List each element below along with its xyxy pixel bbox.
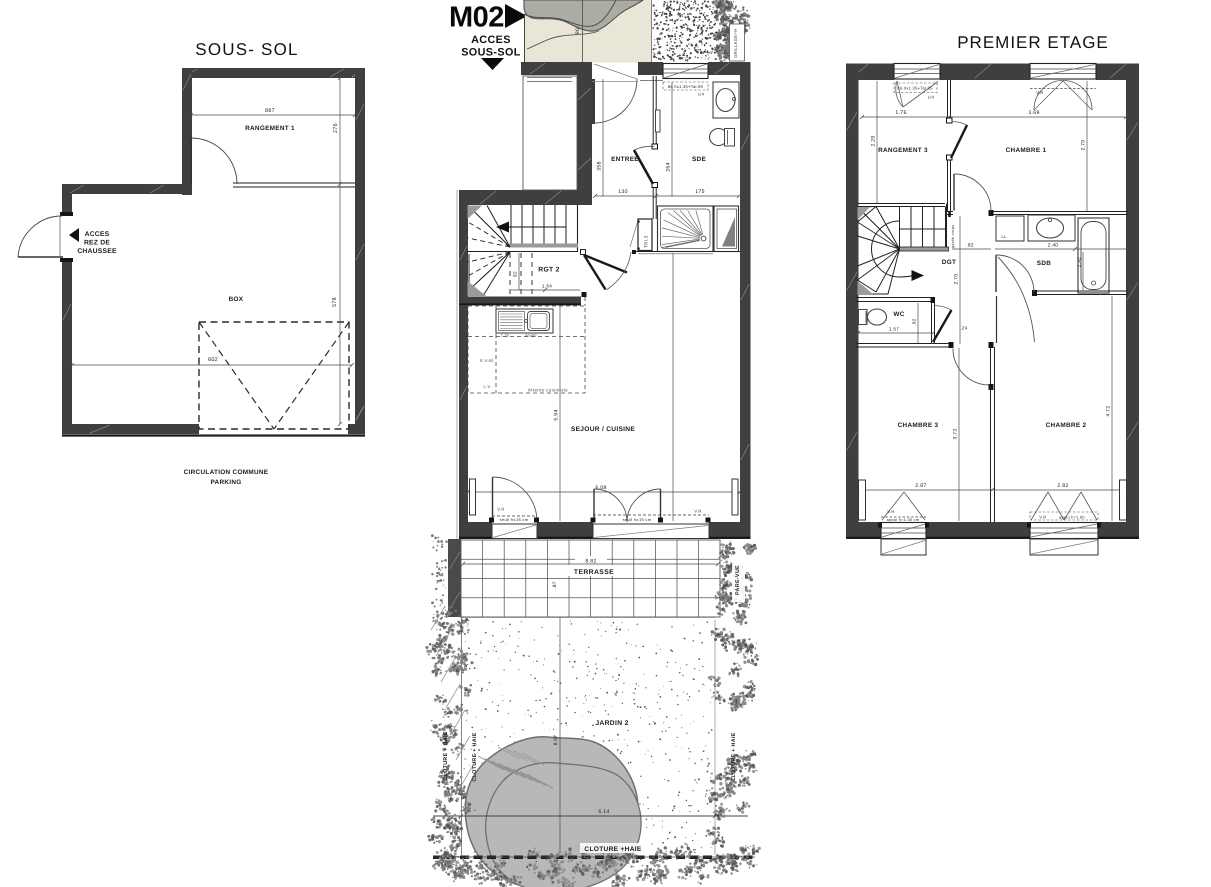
svg-text:2.70: 2.70 <box>954 274 960 285</box>
svg-text:578: 578 <box>332 297 338 307</box>
svg-text:8.07: 8.07 <box>553 735 559 746</box>
svg-text:ENTREE: ENTREE <box>611 156 639 163</box>
svg-text:L.V: L.V <box>484 384 491 389</box>
svg-text:86.0x1.35+Tal.95: 86.0x1.35+Tal.95 <box>897 86 933 91</box>
svg-text:V.R: V.R <box>1036 90 1044 95</box>
svg-text:RANGEMENT 1: RANGEMENT 1 <box>245 125 295 132</box>
svg-text:8.82: 8.82 <box>585 559 596 565</box>
svg-text:DGT: DGT <box>942 259 956 266</box>
svg-text:CLOTURE + HAIE: CLOTURE + HAIE <box>472 732 478 781</box>
svg-text:867: 867 <box>265 108 275 114</box>
svg-text:M02: M02 <box>449 2 504 34</box>
svg-text:garde corps: garde corps <box>951 225 955 248</box>
svg-text:3.69: 3.69 <box>1028 110 1039 116</box>
svg-text:6.14: 6.14 <box>598 809 609 815</box>
svg-text:CHAMBRE 1: CHAMBRE 1 <box>1006 147 1047 154</box>
svg-text:SOUS-SOL: SOUS-SOL <box>461 47 521 59</box>
svg-text:358: 358 <box>597 161 603 171</box>
svg-text:JARDIN 2: JARDIN 2 <box>595 720 628 727</box>
svg-text:602: 602 <box>208 357 218 363</box>
svg-text:PREMIER ETAGE: PREMIER ETAGE <box>957 33 1109 52</box>
svg-text:SDE: SDE <box>692 156 706 163</box>
svg-text:264: 264 <box>666 162 672 172</box>
svg-text:CLOTURE + HAIE: CLOTURE + HAIE <box>731 732 737 781</box>
svg-text:TERRASSE: TERRASSE <box>574 569 614 576</box>
svg-text:92: 92 <box>513 271 519 277</box>
svg-text:SOUS- SOL: SOUS- SOL <box>195 40 298 59</box>
svg-text:CIRCULATION COMMUNE: CIRCULATION COMMUNE <box>184 469 269 476</box>
svg-text:.82: .82 <box>966 243 974 249</box>
svg-text:86.0x1.35+Tal.95: 86.0x1.35+Tal.95 <box>668 84 704 89</box>
svg-text:V.R: V.R <box>497 507 504 512</box>
svg-text:seuil h=15 cm: seuil h=15 cm <box>623 517 652 522</box>
svg-text:2.70: 2.70 <box>1081 140 1087 151</box>
svg-text:1.20: 1.20 <box>501 334 509 338</box>
svg-text:GRILLAGE+H: GRILLAGE+H <box>733 29 738 58</box>
svg-text:SEJOUR / CUISINE: SEJOUR / CUISINE <box>571 426 635 433</box>
svg-text:CLOTURE + HAIE: CLOTURE + HAIE <box>443 731 449 780</box>
svg-text:276: 276 <box>333 123 339 133</box>
svg-text:1.76: 1.76 <box>895 110 906 116</box>
svg-text:ACCES: ACCES <box>471 34 511 46</box>
svg-text:1/4: 1/4 <box>928 95 935 100</box>
svg-text:5.94: 5.94 <box>554 409 560 420</box>
svg-text:130: 130 <box>618 189 628 195</box>
svg-text:ACCES: ACCES <box>85 231 110 238</box>
svg-text:RANGEMENT 3: RANGEMENT 3 <box>878 147 928 154</box>
svg-text:1.64: 1.64 <box>542 284 552 289</box>
svg-text:90: 90 <box>575 28 581 34</box>
svg-text:PARE-VUE: PARE-VUE <box>735 565 741 595</box>
svg-text:CLOTURE +HAIE: CLOTURE +HAIE <box>584 846 642 853</box>
svg-text:seuil h=15 cm: seuil h=15 cm <box>500 517 529 522</box>
svg-text:PARKING: PARKING <box>210 479 241 486</box>
svg-text:REZ DE: REZ DE <box>84 240 110 247</box>
svg-text:BOX: BOX <box>229 296 244 303</box>
svg-text:60x60: 60x60 <box>525 334 536 338</box>
svg-text:1/4: 1/4 <box>698 92 705 97</box>
svg-text:CHAUSSEE: CHAUSSEE <box>77 248 117 255</box>
svg-text:.87: .87 <box>552 581 558 589</box>
svg-text:Attente cuisiniste: Attente cuisiniste <box>528 388 568 393</box>
svg-text:LL: LL <box>1001 234 1007 239</box>
svg-text:RGT 2: RGT 2 <box>538 267 560 274</box>
svg-text:TRI.3: TRI.3 <box>644 235 649 248</box>
svg-text:E.V.60: E.V.60 <box>480 358 494 363</box>
svg-text:2.29: 2.29 <box>871 136 877 147</box>
svg-text:175: 175 <box>695 189 705 195</box>
svg-text:V.R: V.R <box>694 509 701 514</box>
